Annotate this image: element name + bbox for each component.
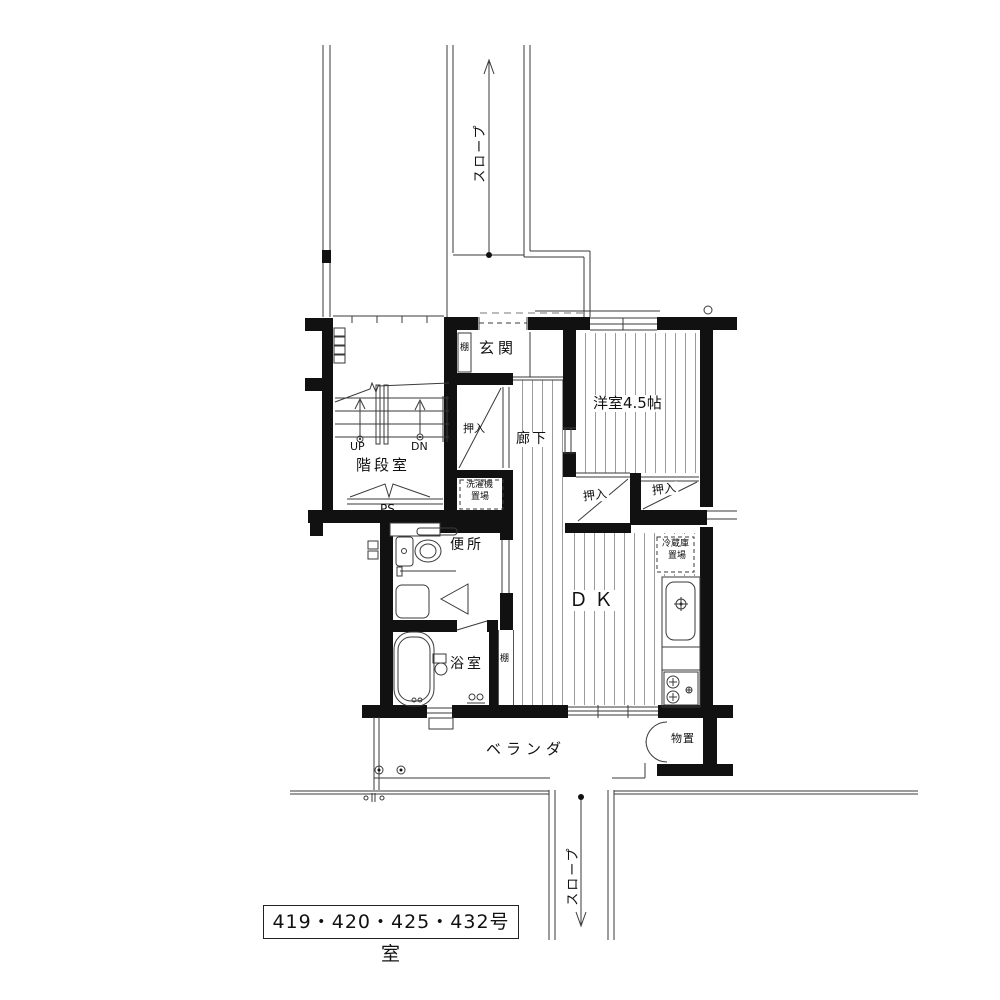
dn-label: DN <box>411 441 428 453</box>
right-wall-notch <box>707 511 737 519</box>
floor-plan: スロープ スロープ 玄関 棚 階段室 UP DN PS 押入 洗濯機 置場 廊下… <box>0 0 1000 1000</box>
plan-linework <box>0 0 1000 1000</box>
western-room-window <box>535 306 712 330</box>
genkan-label: 玄関 <box>479 340 517 357</box>
toilet-fixtures <box>368 528 509 618</box>
dk-label: ＤＫ <box>567 590 621 611</box>
hallway-label: 廊下 <box>514 432 550 447</box>
hall-closet-label: 押入 <box>463 423 485 435</box>
top-slope-walls <box>322 45 590 317</box>
genkan-shelf-label: 棚 <box>460 344 469 354</box>
storage-label: 物置 <box>671 733 695 745</box>
bathroom-fixtures <box>394 621 487 729</box>
bottom-slope <box>549 790 614 940</box>
western-room-label: 洋室4.5帖 <box>591 395 664 412</box>
ps-label: PS <box>380 503 395 516</box>
dk-window <box>568 705 658 718</box>
western-room-door <box>563 428 576 453</box>
veranda-lines <box>290 717 918 802</box>
veranda-label: ベランダ <box>486 741 566 758</box>
up-label: UP <box>350 441 365 453</box>
slope-bottom-label: スロープ <box>567 840 581 912</box>
bathroom-label: 浴室 <box>450 657 484 672</box>
stairwell-label: 階段室 <box>356 457 410 474</box>
laundry-label-line1: 洗濯機 <box>466 481 493 491</box>
storage-doors <box>646 722 667 762</box>
slope-top-label: スロープ <box>474 117 488 189</box>
room-number-box: 419・420・425・432号室 <box>263 905 519 939</box>
toilet-label: 便所 <box>450 538 484 553</box>
bath-shelf-label: 棚 <box>500 655 509 665</box>
kitchen-lines <box>662 577 700 707</box>
fridge-label-line1: 冷蔵庫 <box>662 540 689 550</box>
entrance-approach <box>333 313 585 330</box>
laundry-label-line2: 置場 <box>471 493 489 503</box>
fridge-label-line2: 置場 <box>668 552 686 562</box>
